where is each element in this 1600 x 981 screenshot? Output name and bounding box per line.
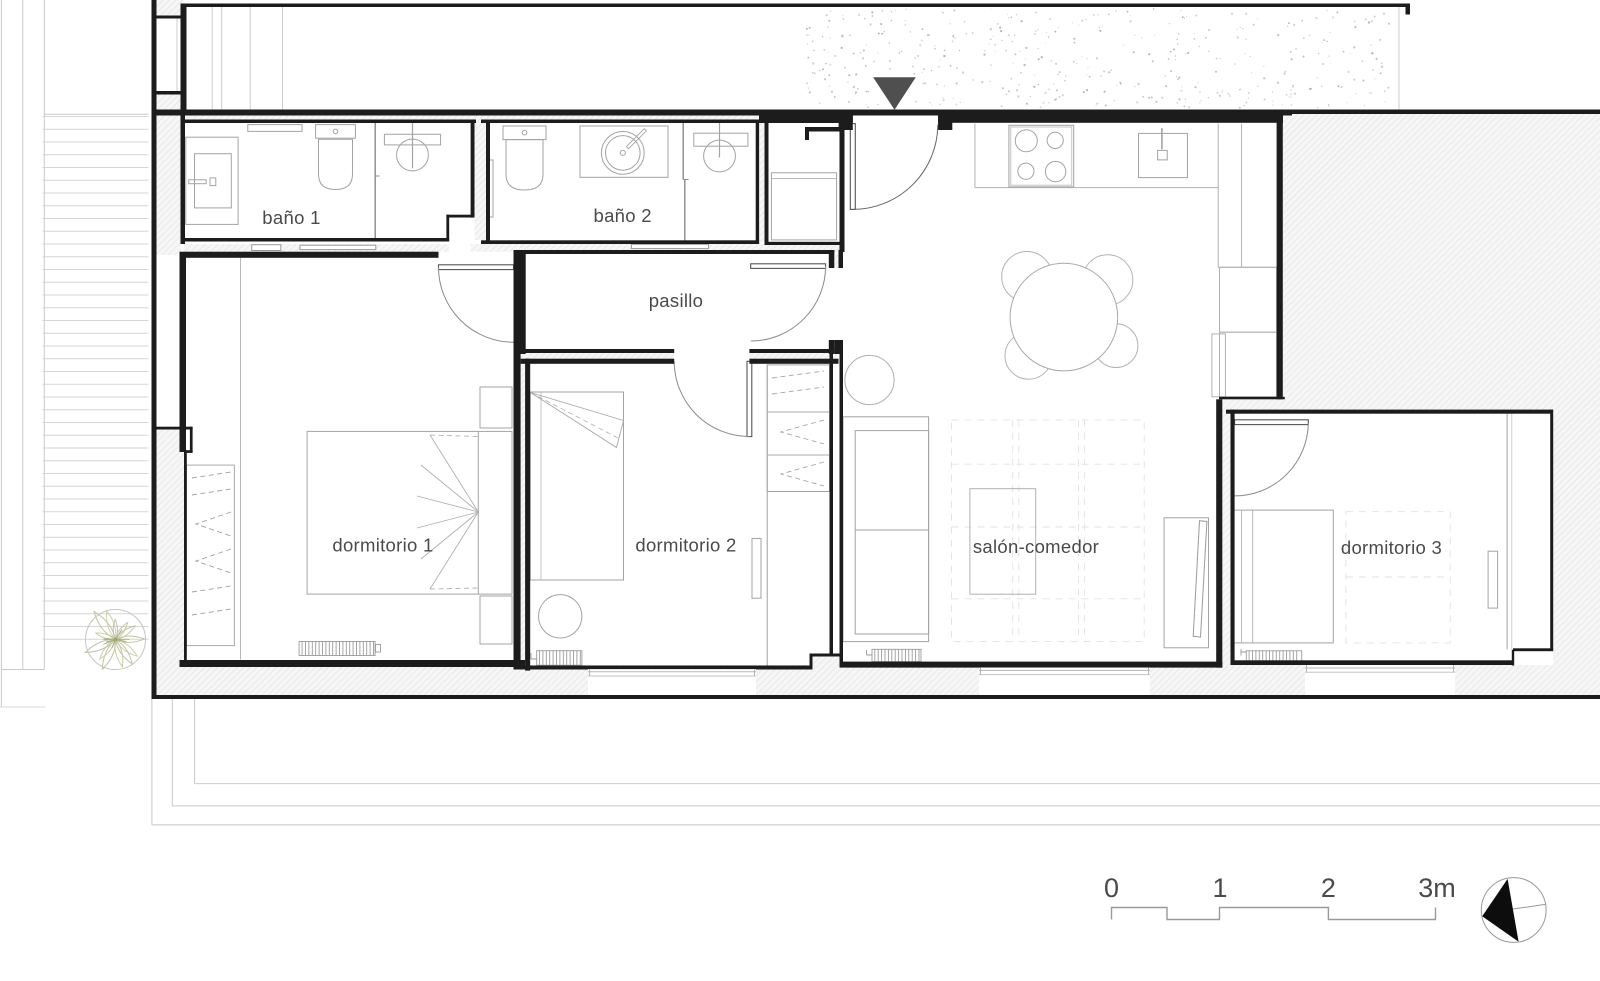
svg-text:dormitorio 2: dormitorio 2	[635, 535, 736, 556]
svg-text:1: 1	[1212, 873, 1227, 903]
svg-text:dormitorio 1: dormitorio 1	[332, 535, 433, 556]
svg-text:baño 2: baño 2	[594, 205, 652, 226]
svg-text:salón-comedor: salón-comedor	[973, 536, 1099, 557]
svg-text:dormitorio 3: dormitorio 3	[1341, 537, 1442, 558]
svg-text:2: 2	[1321, 873, 1336, 903]
svg-text:0: 0	[1104, 873, 1119, 903]
svg-text:3m: 3m	[1418, 873, 1456, 903]
svg-text:pasillo: pasillo	[649, 290, 704, 311]
svg-text:baño 1: baño 1	[262, 207, 320, 228]
